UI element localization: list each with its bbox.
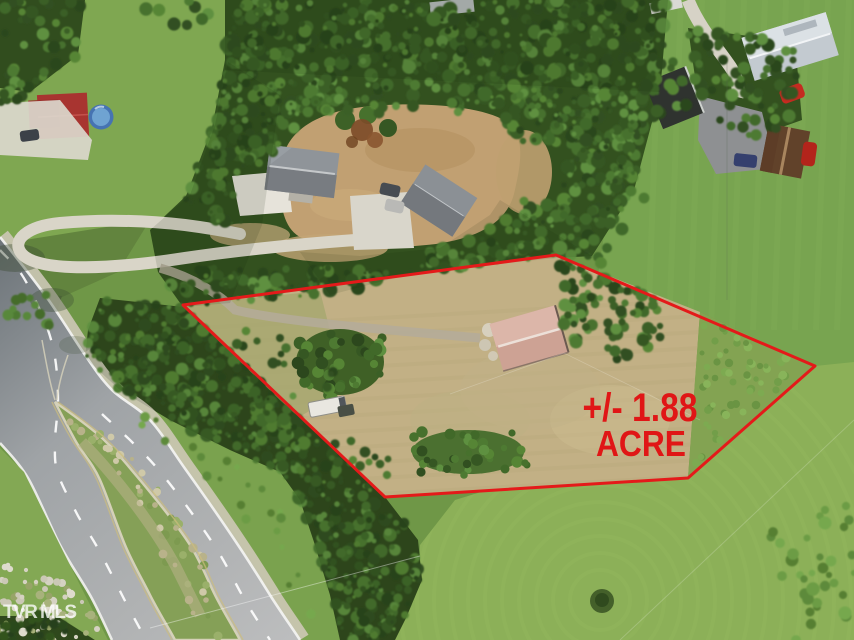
- svg-text:TVR MLS: TVR MLS: [3, 602, 77, 623]
- svg-text:ACRE: ACRE: [596, 423, 686, 464]
